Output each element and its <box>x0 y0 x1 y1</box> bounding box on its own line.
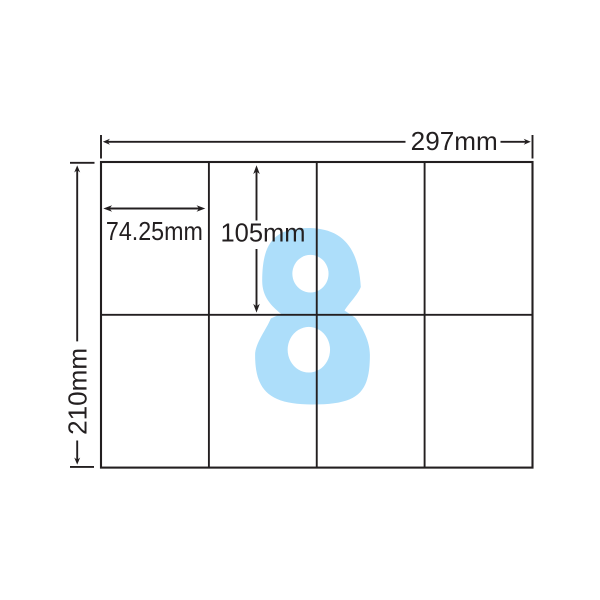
svg-text:74.25mm: 74.25mm <box>106 216 203 246</box>
svg-text:297mm: 297mm <box>411 126 498 156</box>
svg-text:210mm: 210mm <box>63 348 93 435</box>
svg-text:105mm: 105mm <box>221 218 306 248</box>
